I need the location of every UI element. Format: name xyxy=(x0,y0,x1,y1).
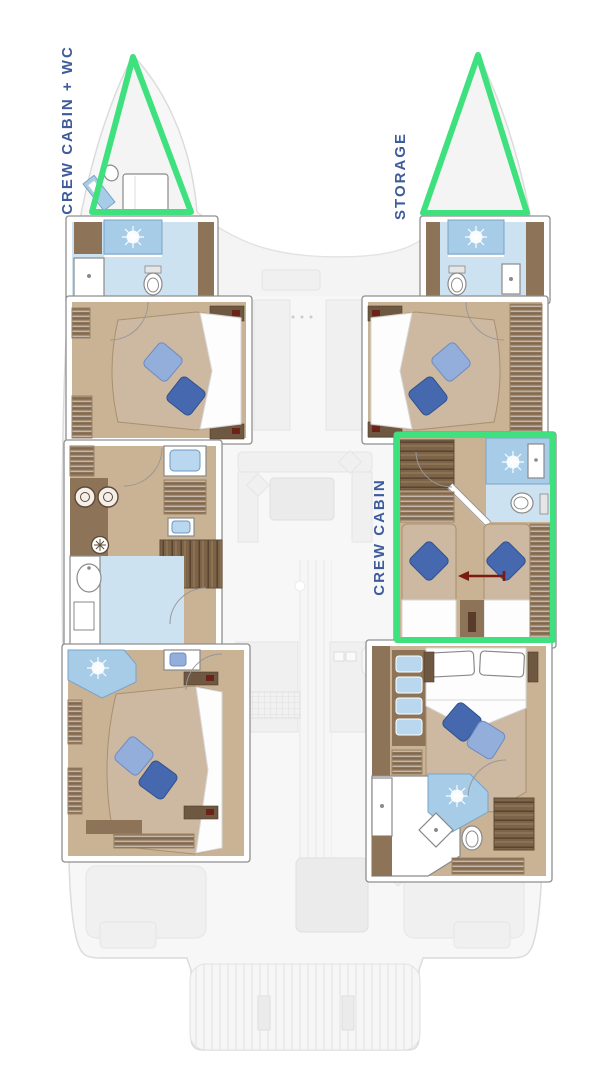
galley-forward-left xyxy=(254,300,290,430)
toilet xyxy=(144,266,162,295)
galley-forward-right xyxy=(326,300,362,430)
toilet xyxy=(448,266,466,295)
crew-cabin-mid xyxy=(394,432,556,648)
vent-fan xyxy=(92,537,109,554)
swim-platform xyxy=(190,964,420,1050)
left-forward-cabin xyxy=(66,296,252,444)
left-forward-bathroom xyxy=(66,216,218,304)
right-aft-cabin xyxy=(366,640,552,882)
catamaran-floor-plan: CREW CABIN + WC STORAGE CREW CABIN xyxy=(0,0,611,1080)
right-forward-cabin xyxy=(362,296,548,444)
salon-walkway xyxy=(298,560,332,860)
cockpit-table xyxy=(296,858,368,932)
stairs xyxy=(400,440,454,490)
crew-berth xyxy=(123,174,168,212)
toilet xyxy=(462,826,482,850)
mast-base xyxy=(262,270,320,290)
right-forward-bathroom xyxy=(420,216,550,304)
stairs xyxy=(494,798,534,850)
label-crew-cabin-wc: CREW CABIN + WC xyxy=(59,45,76,215)
floor-plan-canvas: CREW CABIN + WC STORAGE CREW CABIN xyxy=(0,0,611,1080)
toilet xyxy=(511,493,548,514)
label-storage: STORAGE xyxy=(392,132,409,220)
label-crew-cabin: CREW CABIN xyxy=(371,478,388,596)
left-aft-cabin xyxy=(62,644,250,862)
